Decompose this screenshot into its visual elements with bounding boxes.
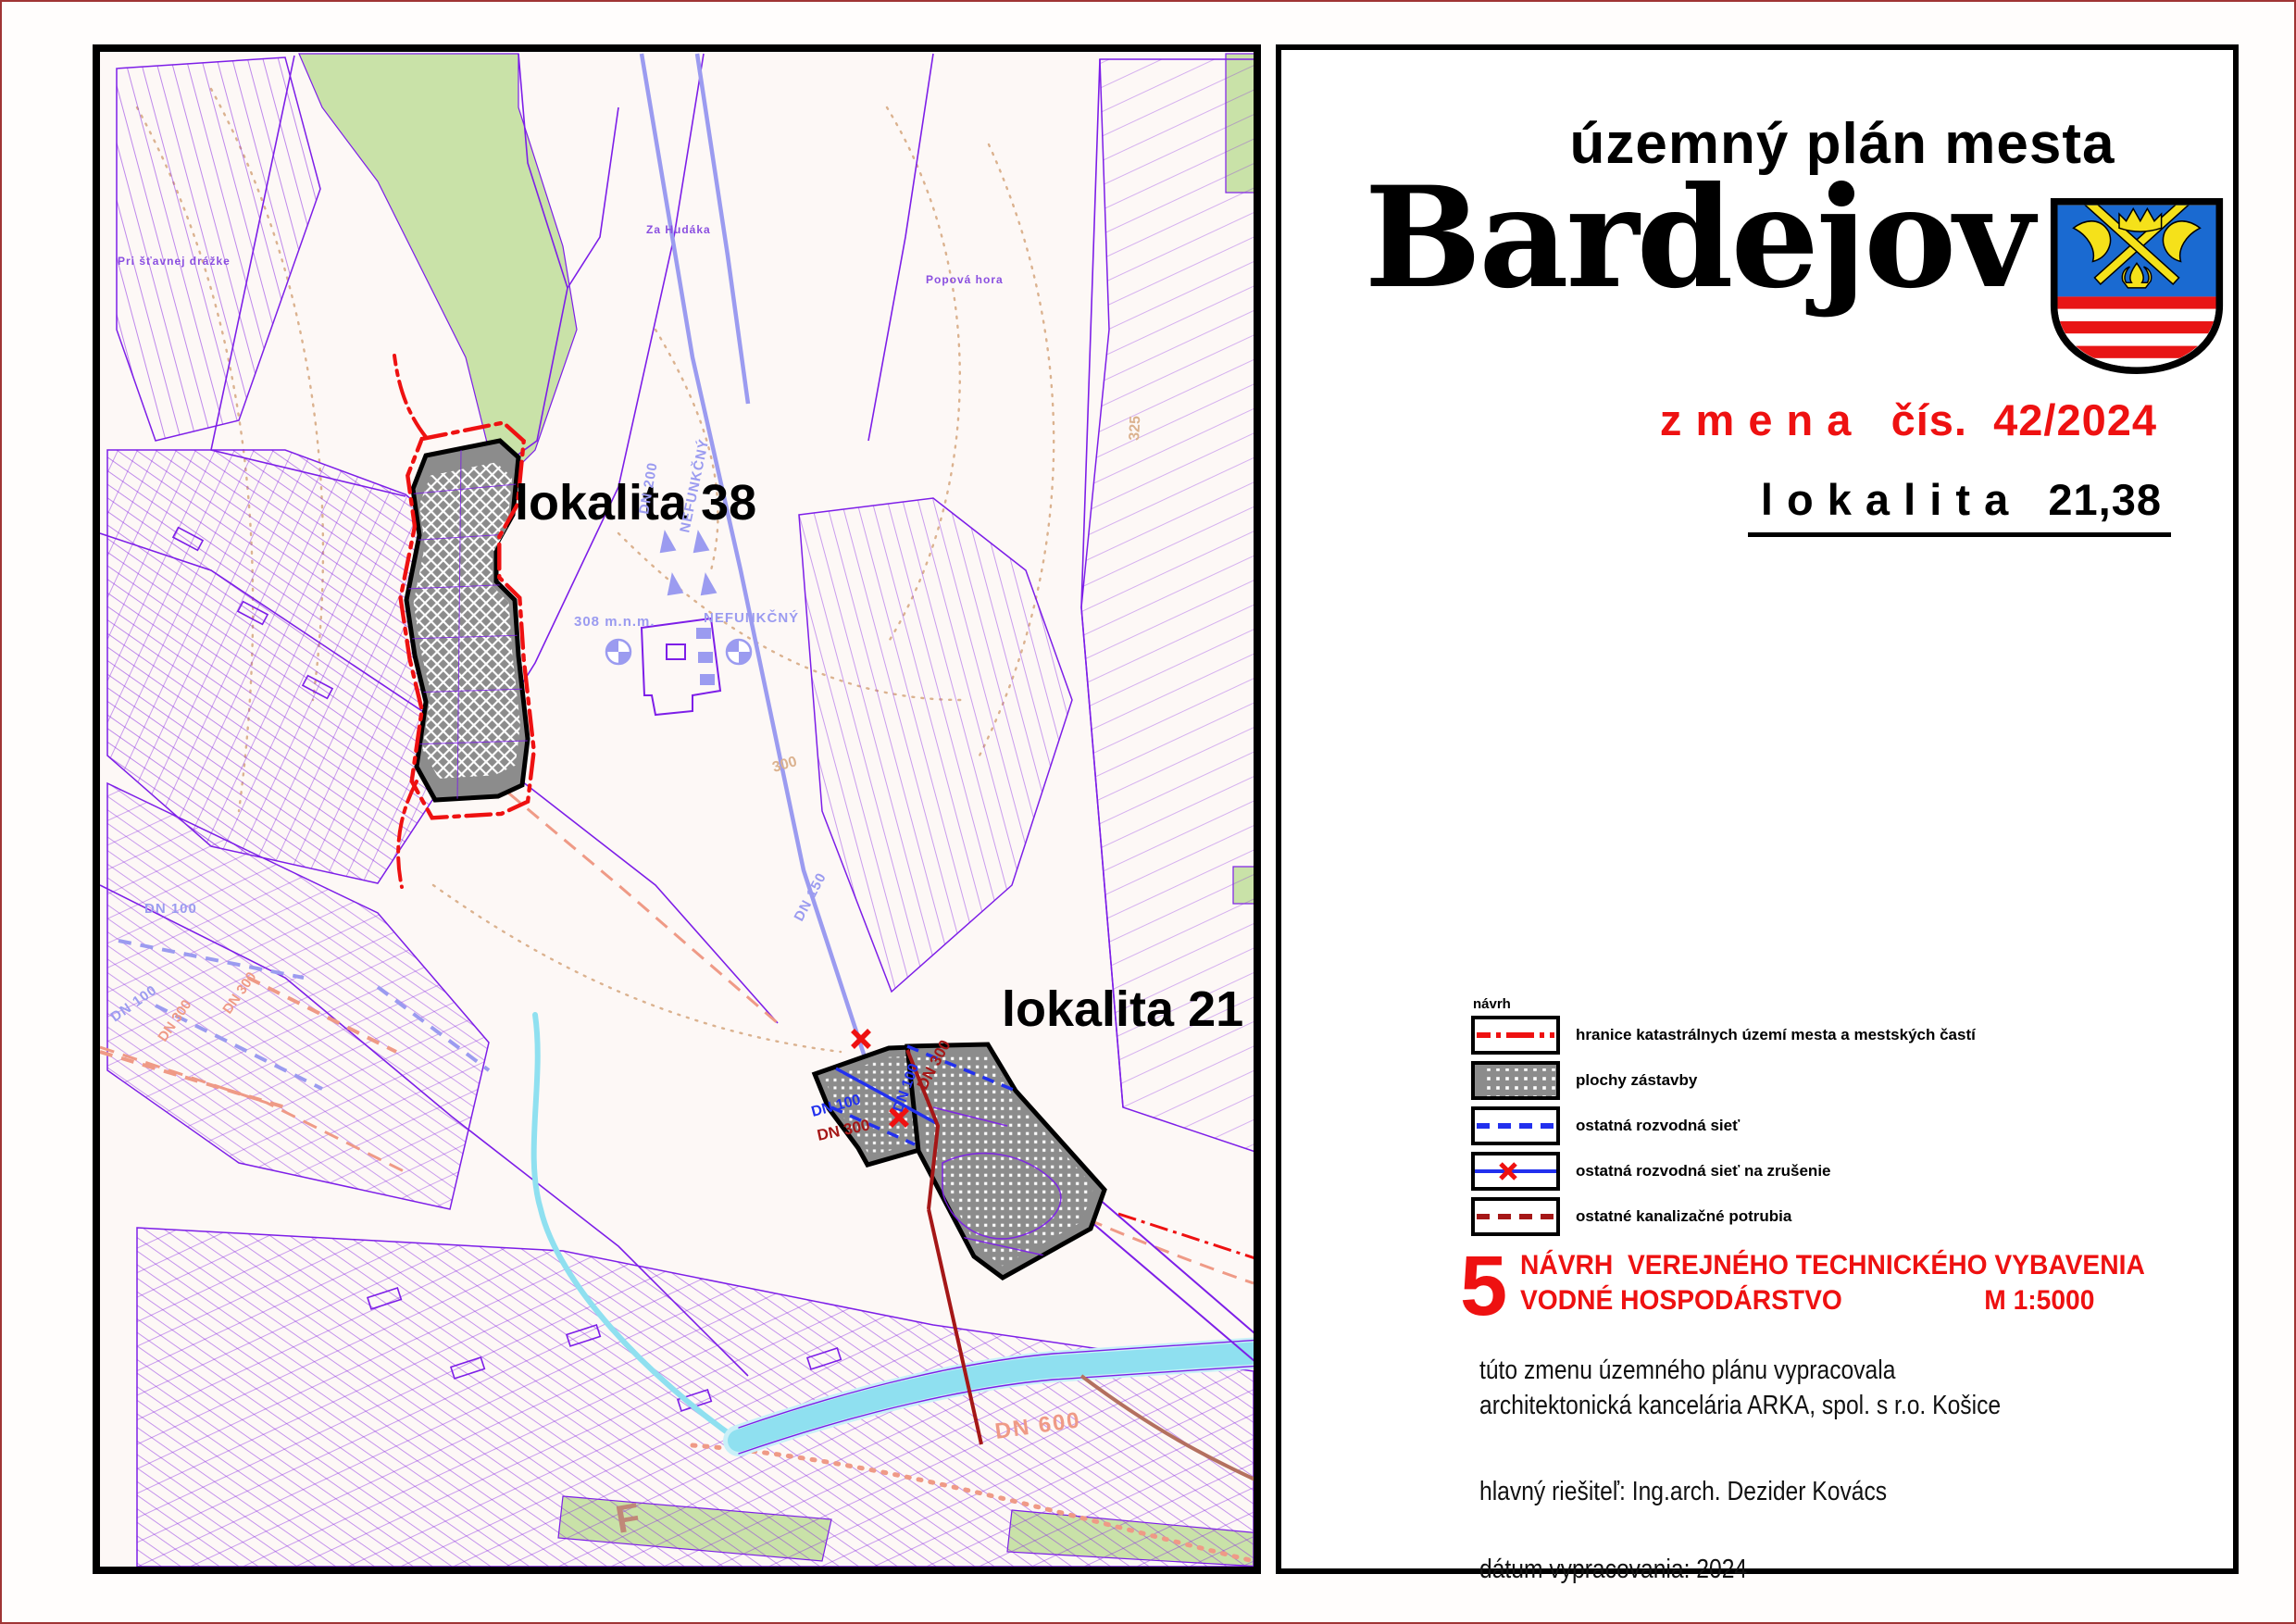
label-elevation-308: 308 m.n.m. [574,614,655,630]
legend-row-boundary: hranice katastrálnych území mesta a mest… [1471,1016,1976,1055]
credits: túto zmenu územného plánu vypracovala ar… [1479,1354,2092,1588]
label-popova-hora: Popová hora [926,273,1004,286]
label-nefunkcny: NEFUNKČNÝ [704,609,799,626]
legend-row-network-cancel: ostatná rozvodná sieť na zrušenie [1471,1152,1976,1191]
legend-row-network: ostatná rozvodná sieť [1471,1106,1976,1145]
title-panel: územný plán mesta Bardejov z [1276,44,2239,1574]
credits-line2: architektonická kancelária ARKA, spol. s… [1479,1389,2001,1424]
legend-label: hranice katastrálnych území mesta a mest… [1576,1026,1976,1044]
label-lokalita-38: lokalita 38 [515,475,756,531]
sheet-block: 5 NÁVRH VEREJNÉHO TECHNICKÉHO VYBAVENIA … [1460,1250,2131,1323]
locality-line: l o k a l i t a 21,38 [1748,474,2171,537]
legend-swatch-boundary [1471,1016,1560,1055]
legend-label: ostatná rozvodná sieť [1576,1117,1740,1135]
stripes [2049,296,2225,367]
sheet-number: 5 [1460,1250,1507,1323]
legend-header: návrh [1473,996,1976,1012]
map-svg: lokalita 38 lokalita 21 Pri šťavnej dráž… [100,52,1254,1567]
city-title: Bardejov [1346,169,2050,307]
legend-swatch-network-cancel [1471,1152,1560,1191]
label-dn100-a: DN 100 [144,901,197,917]
label-za-hudaka: Za Hudáka [646,223,711,236]
label-pri-stavnej-drazke: Pri šťavnej drážke [118,255,231,268]
legend-swatch-built-up [1471,1061,1560,1100]
credits-line4: dátum vypracovania: 2024 [1479,1553,2001,1588]
legend-label: ostatné kanalizačné potrubia [1576,1207,1791,1226]
sheet-title-line2: VODNÉ HOSPODÁRSTVO M 1:5000 [1520,1285,2094,1317]
map-panel: lokalita 38 lokalita 21 Pri šťavnej dráž… [93,44,1261,1574]
credits-line3: hlavný riešiteľ: Ing.arch. Dezider Kovác… [1479,1475,2001,1510]
legend-label: plochy zástavby [1576,1071,1697,1090]
legend-swatch-sewer [1471,1197,1560,1236]
change-number-line: z m e n a čís. 42/2024 [1660,394,2157,445]
coat-of-arms [2049,196,2225,376]
sheet-scale: M 1:5000 [1984,1285,2094,1317]
legend-label: ostatná rozvodná sieť na zrušenie [1576,1162,1831,1181]
label-lokalita-21: lokalita 21 [1002,981,1243,1037]
label-contour-325: 325 [1127,416,1143,442]
legend-row-built-up: plochy zástavby [1471,1061,1976,1100]
legend-swatch-network [1471,1106,1560,1145]
legend-row-sewer: ostatné kanalizačné potrubia [1471,1197,1976,1236]
sheet-subject: VODNÉ HOSPODÁRSTVO [1520,1285,1842,1317]
legend: návrh hranice katastrálnych území mesta … [1471,996,1976,1243]
credits-line1: túto zmenu územného plánu vypracovala [1479,1354,2001,1389]
sheet-title-line1: NÁVRH VEREJNÉHO TECHNICKÉHO VYBAVENIA [1520,1250,2094,1281]
